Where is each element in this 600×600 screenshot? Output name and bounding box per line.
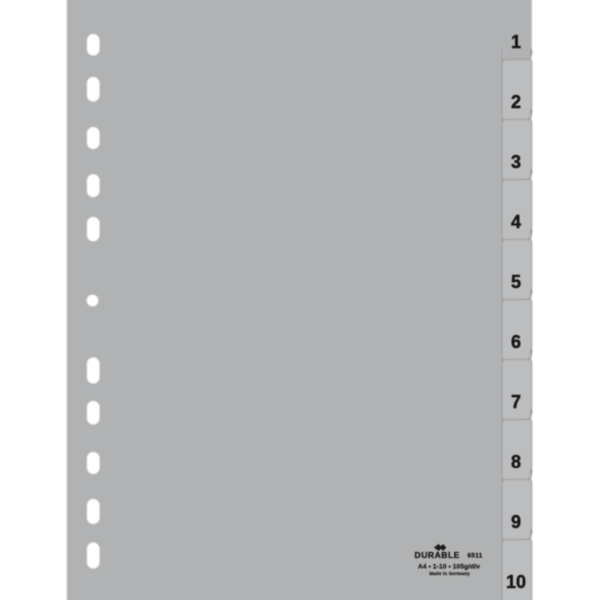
svg-text:1: 1: [511, 32, 521, 52]
svg-text:2: 2: [511, 92, 521, 112]
svg-text:4: 4: [511, 212, 521, 232]
svg-text:Made in Germany: Made in Germany: [429, 571, 470, 576]
svg-text:7: 7: [511, 392, 521, 412]
svg-text:8: 8: [511, 452, 521, 472]
svg-text:6: 6: [511, 332, 521, 352]
svg-text:6511: 6511: [468, 553, 483, 560]
svg-text:3: 3: [511, 152, 521, 172]
svg-text:DURABLE: DURABLE: [415, 550, 460, 560]
svg-text:A4 • 1-10 • 105g/div: A4 • 1-10 • 105g/div: [418, 564, 480, 571]
svg-text:9: 9: [511, 512, 521, 532]
svg-text:10: 10: [506, 572, 526, 592]
svg-text:5: 5: [511, 272, 521, 292]
